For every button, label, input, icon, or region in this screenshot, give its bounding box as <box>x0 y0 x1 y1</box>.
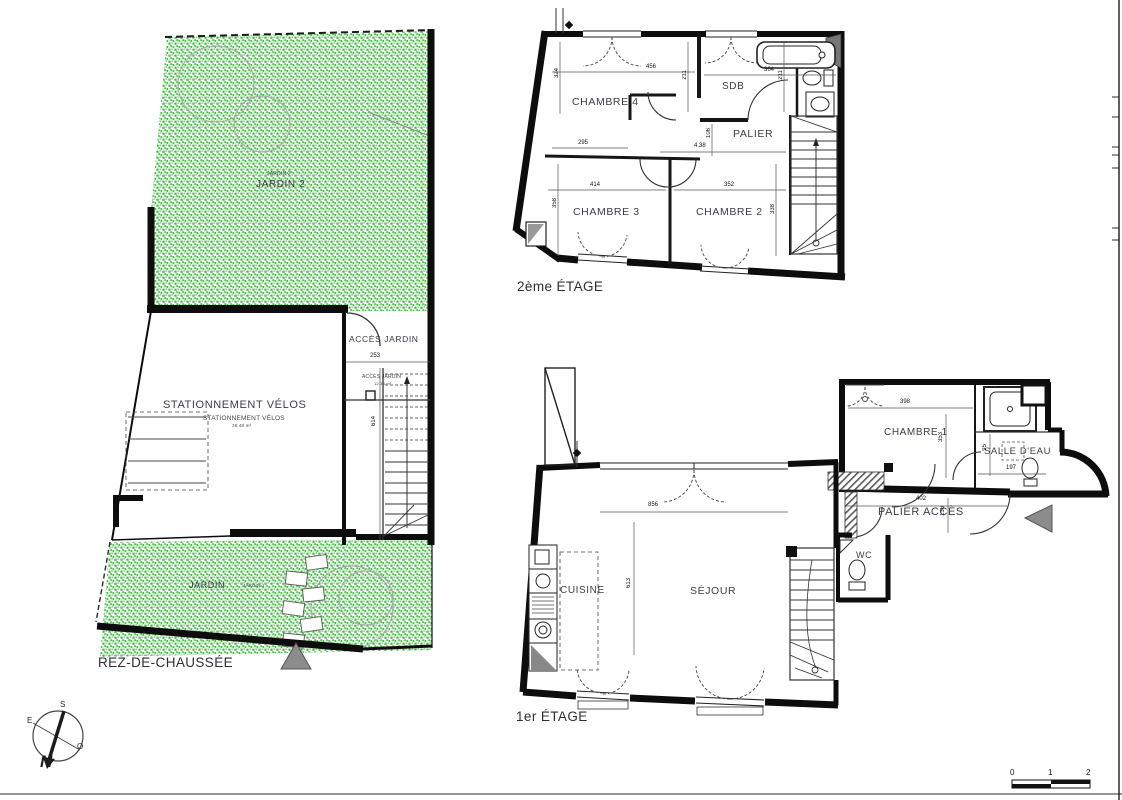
dimension-label: 456 <box>646 64 656 70</box>
floor-plan-sheet: JARDIN 2 JARDIN 2 STATIONNEMENT VÉLOS ST… <box>0 0 1122 800</box>
dimension-label: 352 <box>724 182 734 188</box>
toilet-second-floor <box>803 70 833 86</box>
dimension-label: 295 <box>578 140 588 146</box>
dimension-label: 613 <box>626 578 632 588</box>
room-label-wc: WC <box>856 551 872 560</box>
dimension-label: 324 <box>554 68 560 78</box>
scale-tick-1: 1 <box>1048 769 1052 777</box>
room-label-cuisine: CUISINE <box>560 586 605 596</box>
room-label-chambre3: CHAMBRE 3 <box>573 207 640 218</box>
ground-floor-plan <box>96 29 433 669</box>
dimension-label: 364 <box>764 67 774 73</box>
dimension-label: 402 <box>916 496 926 502</box>
dimension-label: 414 <box>590 182 600 188</box>
room-label-chambre2: CHAMBRE 2 <box>696 207 763 218</box>
dimension-label: 197 <box>1006 465 1016 471</box>
first-floor-title: 1er ÉTAGE <box>516 710 588 724</box>
second-floor-plan <box>516 8 845 277</box>
compass-e: E <box>27 717 32 725</box>
toilet-wc <box>849 560 865 590</box>
dimension-label: 136 <box>940 506 946 516</box>
room-label-palier: PALIER <box>733 129 773 140</box>
room-label-palier-acces: PALIER ACCÈS <box>878 507 964 518</box>
room-label-chambre4: CHAMBRE 4 <box>572 97 639 108</box>
dimension-label: 106 <box>706 128 712 138</box>
toilet-salle-eau <box>1022 458 1038 486</box>
sink-second-floor <box>806 92 834 117</box>
dimension-label: 211 <box>778 70 784 80</box>
staircase-second-floor <box>791 116 837 254</box>
staircase-ground-floor <box>384 374 429 536</box>
entrance-arrow-first <box>1025 505 1052 532</box>
dimension-label: 95 <box>982 444 988 451</box>
acces-jardin-area: 12.33 m² <box>374 382 391 386</box>
dimension-label: 4.38 <box>694 143 706 149</box>
level-marker-icon <box>556 8 563 33</box>
dimension-label: 614 <box>371 416 377 426</box>
duct-shaft <box>545 368 575 465</box>
ground-floor-title: REZ-DE-CHAUSSÉE <box>98 656 233 670</box>
bike-parking-stalls <box>128 417 206 483</box>
scale-tick-2: 2 <box>1086 769 1090 777</box>
bathtub <box>757 42 835 68</box>
compass-o: O <box>77 743 83 751</box>
first-floor-plan <box>523 368 1108 715</box>
room-label-salle-eau: SALLE D'EAU <box>984 447 1051 457</box>
acces-jardin-label: ACCÈS JARDIN <box>349 335 419 344</box>
acces-jardin-label-small: ACCÈS JARDIN <box>362 375 401 380</box>
dimension-label: 253 <box>370 353 380 359</box>
dimension-label: 398 <box>900 399 910 405</box>
dimension-label: 353 <box>938 432 944 442</box>
scale-tick-0: 0 <box>1010 769 1014 777</box>
second-floor-title: 2ème ÉTAGE <box>517 280 603 294</box>
bike-parking-area: 36.48 m² <box>232 424 251 429</box>
compass-n: N <box>40 753 52 770</box>
garden-bottom-label: JARDIN <box>189 581 225 590</box>
bike-parking-label: STATIONNEMENT VÉLOS <box>163 400 306 411</box>
compass-s: S <box>60 701 65 709</box>
dimension-label: 856 <box>648 502 658 508</box>
garden-top-area <box>151 31 432 311</box>
bike-parking-label-small: STATIONNEMENT VÉLOS <box>203 416 285 423</box>
room-label-sdb: SDB <box>722 82 744 92</box>
dimension-label: 358 <box>552 198 558 208</box>
garden-top-label: JARDIN 2 <box>256 180 305 190</box>
dimension-label: 211 <box>682 70 688 80</box>
garden-top-label-small: JARDIN 2 <box>267 172 291 177</box>
room-label-sejour: SÉJOUR <box>690 586 736 597</box>
scale-bar <box>1012 780 1090 788</box>
staircase-first-floor <box>790 548 834 680</box>
dimension-label: 338 <box>770 204 776 214</box>
garden-bottom-label-small: JARDIN 1 <box>243 584 265 589</box>
